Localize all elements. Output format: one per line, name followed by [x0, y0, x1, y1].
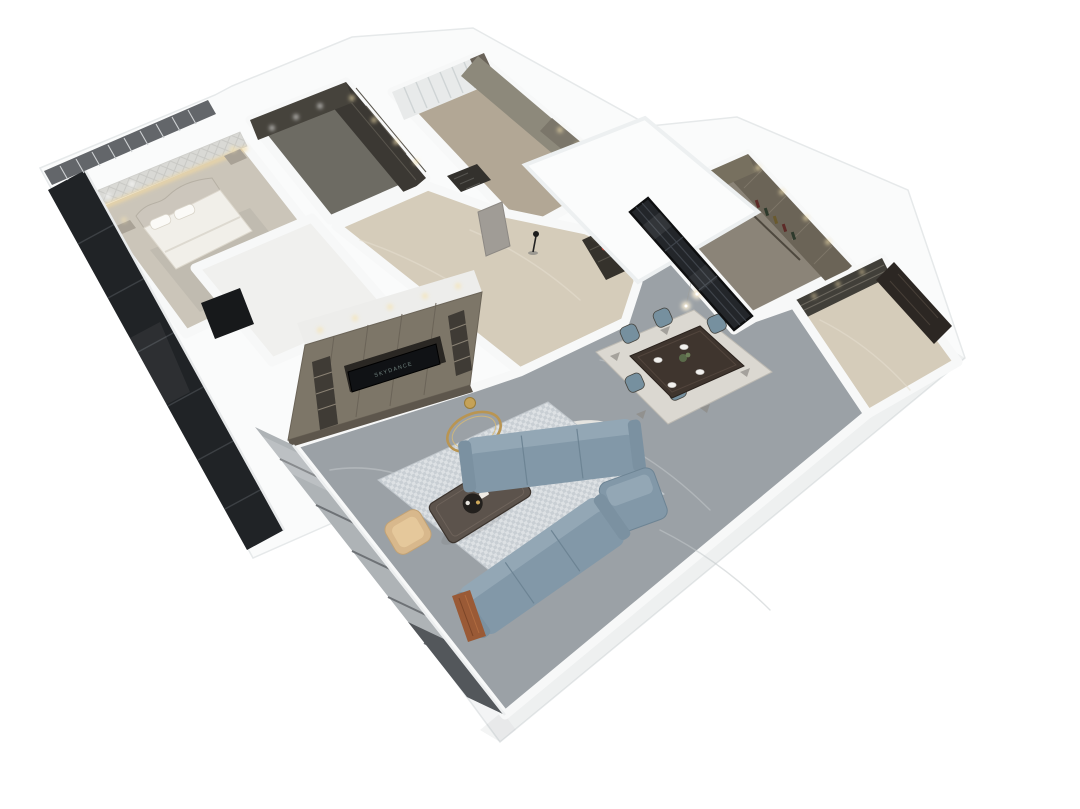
table-lamp — [122, 218, 126, 222]
table-lamp — [230, 146, 235, 151]
floorplan-svg: SKYDANCE — [0, 0, 1080, 809]
floorplan-render: SKYDANCE — [0, 0, 1080, 809]
gold-dish — [465, 398, 476, 409]
